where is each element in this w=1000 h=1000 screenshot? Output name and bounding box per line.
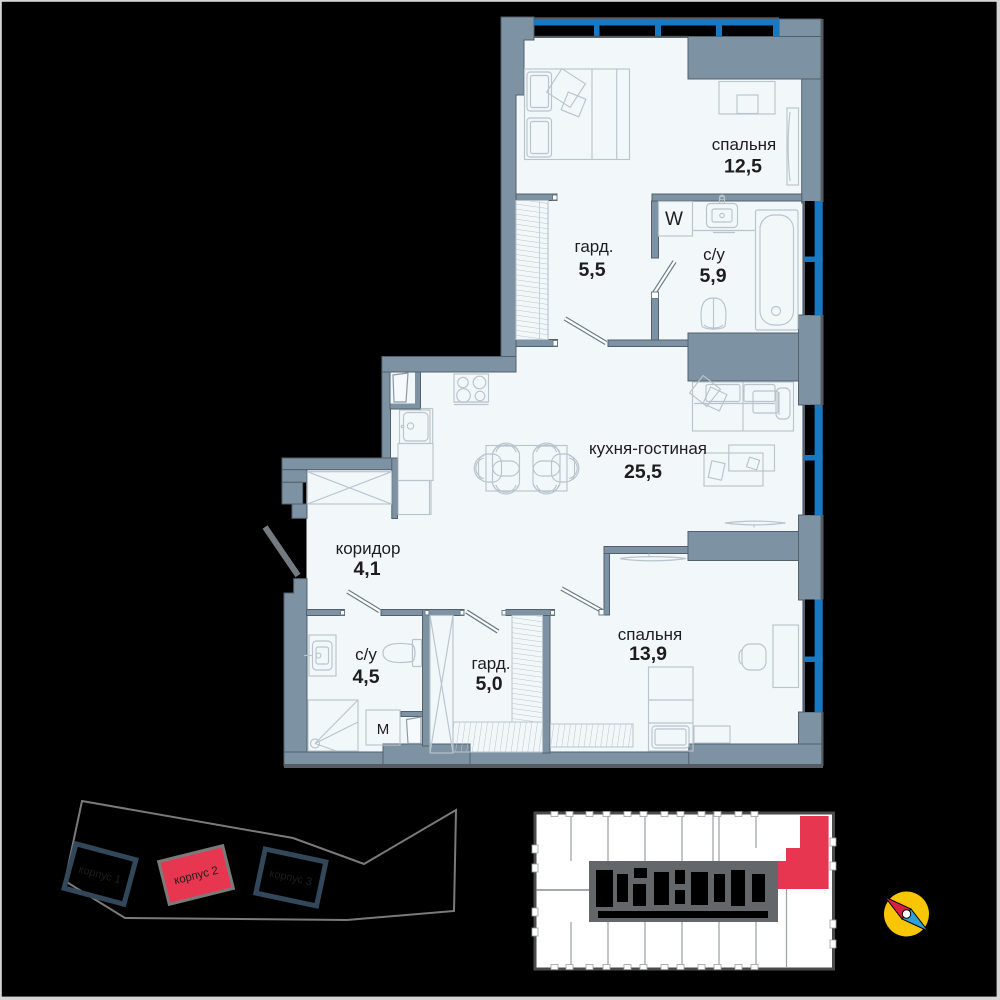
svg-text:с/у: с/у (355, 645, 377, 664)
svg-text:корпус 1: корпус 1 (77, 864, 122, 887)
svg-text:5,5: 5,5 (578, 259, 605, 281)
svg-text:13,9: 13,9 (629, 643, 667, 665)
svg-text:гард.: гард. (472, 654, 511, 673)
svg-text:5,0: 5,0 (475, 673, 502, 695)
svg-text:12,5: 12,5 (724, 156, 762, 178)
svg-text:спальня: спальня (618, 625, 683, 644)
svg-text:коридор: коридор (336, 539, 401, 558)
svg-text:25,5: 25,5 (624, 461, 662, 483)
svg-text:гард.: гард. (575, 237, 614, 256)
svg-text:5,9: 5,9 (699, 265, 726, 287)
svg-text:с/у: с/у (703, 245, 725, 264)
svg-text:корпус 3: корпус 3 (268, 868, 313, 889)
svg-text:4,1: 4,1 (353, 558, 380, 580)
svg-text:W: W (665, 209, 683, 230)
svg-text:4,5: 4,5 (352, 666, 379, 688)
svg-text:кухня-гостиная: кухня-гостиная (589, 439, 707, 458)
svg-text:М: М (377, 721, 390, 738)
svg-text:спальня: спальня (712, 135, 777, 154)
